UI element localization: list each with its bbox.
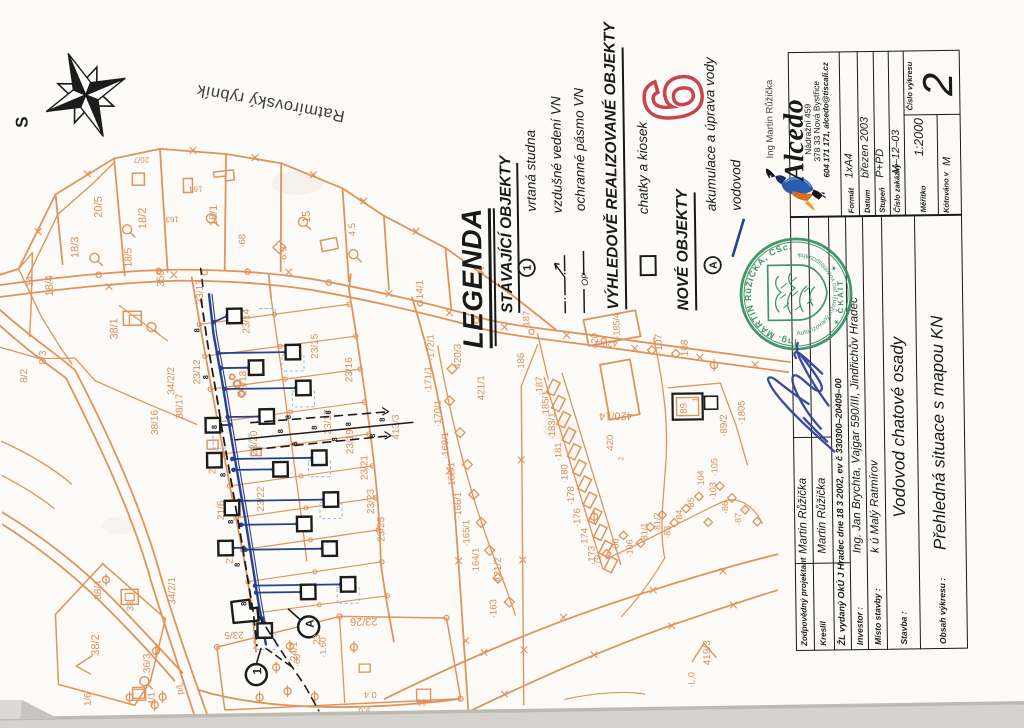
svg-text:✶: ✶ xyxy=(832,319,841,326)
svg-text:Autorizovaný inženýr pro vodoh: Autorizovaný inženýr pro vodohospodářské… xyxy=(0,250,845,728)
svg-text:✶: ✶ xyxy=(830,265,839,272)
svg-text:6: 6 xyxy=(626,69,722,127)
svg-text:ČKAIT: ČKAIT xyxy=(836,279,845,314)
svg-text:Ing. MARTIN RůŽIČKA, CSc. ✶: Ing. MARTIN RůŽIČKA, CSc. ✶ 1011010 xyxy=(0,241,802,728)
